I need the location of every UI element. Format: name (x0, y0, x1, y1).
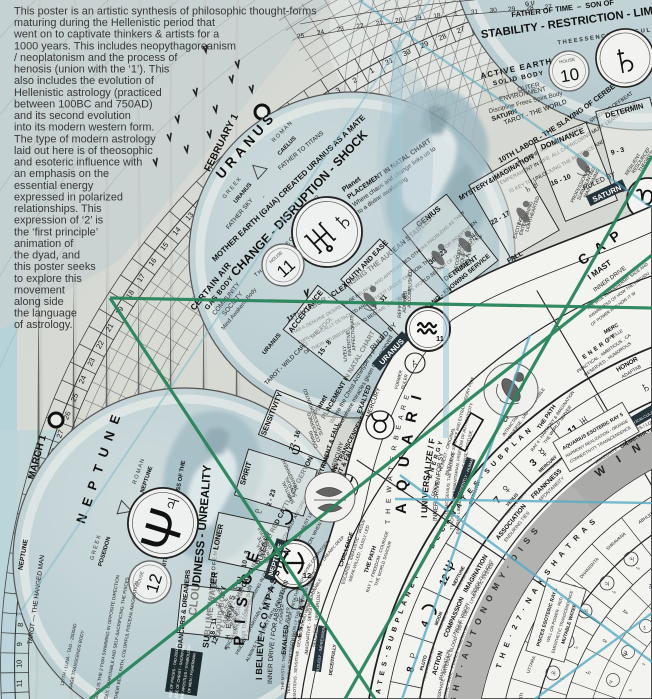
svg-text:expression of ‘2’ is: expression of ‘2’ is (14, 215, 104, 227)
svg-text:laid out here is of theosophic: laid out here is of theosophic (14, 145, 153, 157)
svg-text:31: 31 (471, 9, 479, 17)
svg-text:20: 20 (395, 17, 403, 25)
svg-text:11: 11 (15, 679, 24, 687)
svg-text:movement: movement (14, 284, 65, 296)
svg-text:into its modern western form.: into its modern western form. (14, 122, 154, 134)
svg-text:22: 22 (356, 22, 365, 30)
svg-text:29: 29 (508, 6, 516, 13)
svg-text:9: 9 (15, 642, 24, 646)
svg-text:♃: ♃ (628, 554, 635, 564)
svg-text:and its second evolution: and its second evolution (14, 110, 131, 122)
svg-text:the language: the language (14, 308, 77, 320)
svg-text:animation of: animation of (14, 238, 74, 250)
svg-text:to explore this: to explore this (14, 273, 82, 285)
svg-text:21: 21 (375, 19, 384, 27)
svg-text:the dyad, and: the dyad, and (14, 250, 80, 262)
svg-text:8: 8 (16, 622, 25, 627)
svg-text:and esoteric influence with: and esoteric influence with (14, 157, 142, 169)
svg-text:30: 30 (489, 7, 497, 15)
svg-text:11: 11 (436, 334, 444, 343)
svg-text:10: 10 (559, 64, 581, 86)
svg-text:went on to captivate thinkers: went on to captivate thinkers & artists … (13, 29, 220, 41)
svg-text:27: 27 (544, 4, 552, 11)
svg-text:also includes the evolution of: also includes the evolution of (14, 75, 155, 87)
svg-text:1000 years. This includes neop: 1000 years. This includes neopythagorean… (14, 40, 236, 52)
svg-text:The type of modern astrology: The type of modern astrology (14, 133, 156, 145)
svg-text:♃: ♃ (603, 578, 610, 588)
svg-text:this poster seeks: this poster seeks (14, 261, 96, 273)
svg-text:This poster is an artistic syn: This poster is an artistic synthesis of … (14, 6, 317, 18)
svg-text:henosis (union with the ‘1’).: henosis (union with the ‘1’). This (14, 64, 170, 76)
svg-text:♃: ♃ (550, 668, 557, 678)
svg-text:the ‘first principle’: the ‘first principle’ (14, 226, 98, 238)
svg-text:♄: ♄ (410, 355, 421, 371)
svg-text:/ neoplatonism and the process: / neoplatonism and the process of (14, 52, 178, 64)
svg-text:an emphasis on the: an emphasis on the (14, 168, 109, 180)
svg-text:expressed in polarized: expressed in polarized (14, 191, 123, 203)
svg-text:of astrology.: of astrology. (14, 319, 73, 331)
svg-text:relationships. This: relationships. This (14, 203, 102, 215)
svg-text:10: 10 (15, 660, 24, 668)
svg-text:28: 28 (526, 5, 534, 12)
svg-text:between 100BC and 750AD): between 100BC and 750AD) (14, 98, 153, 110)
svg-text:along side: along side (14, 296, 64, 308)
svg-text:18: 18 (433, 12, 441, 20)
svg-text:essential energy: essential energy (14, 180, 94, 192)
svg-text:maturing during the Hellenisti: maturing during the Hellenistic period t… (14, 17, 215, 29)
svg-text:Hellenistic astrology (practic: Hellenistic astrology (practiced (14, 87, 162, 99)
